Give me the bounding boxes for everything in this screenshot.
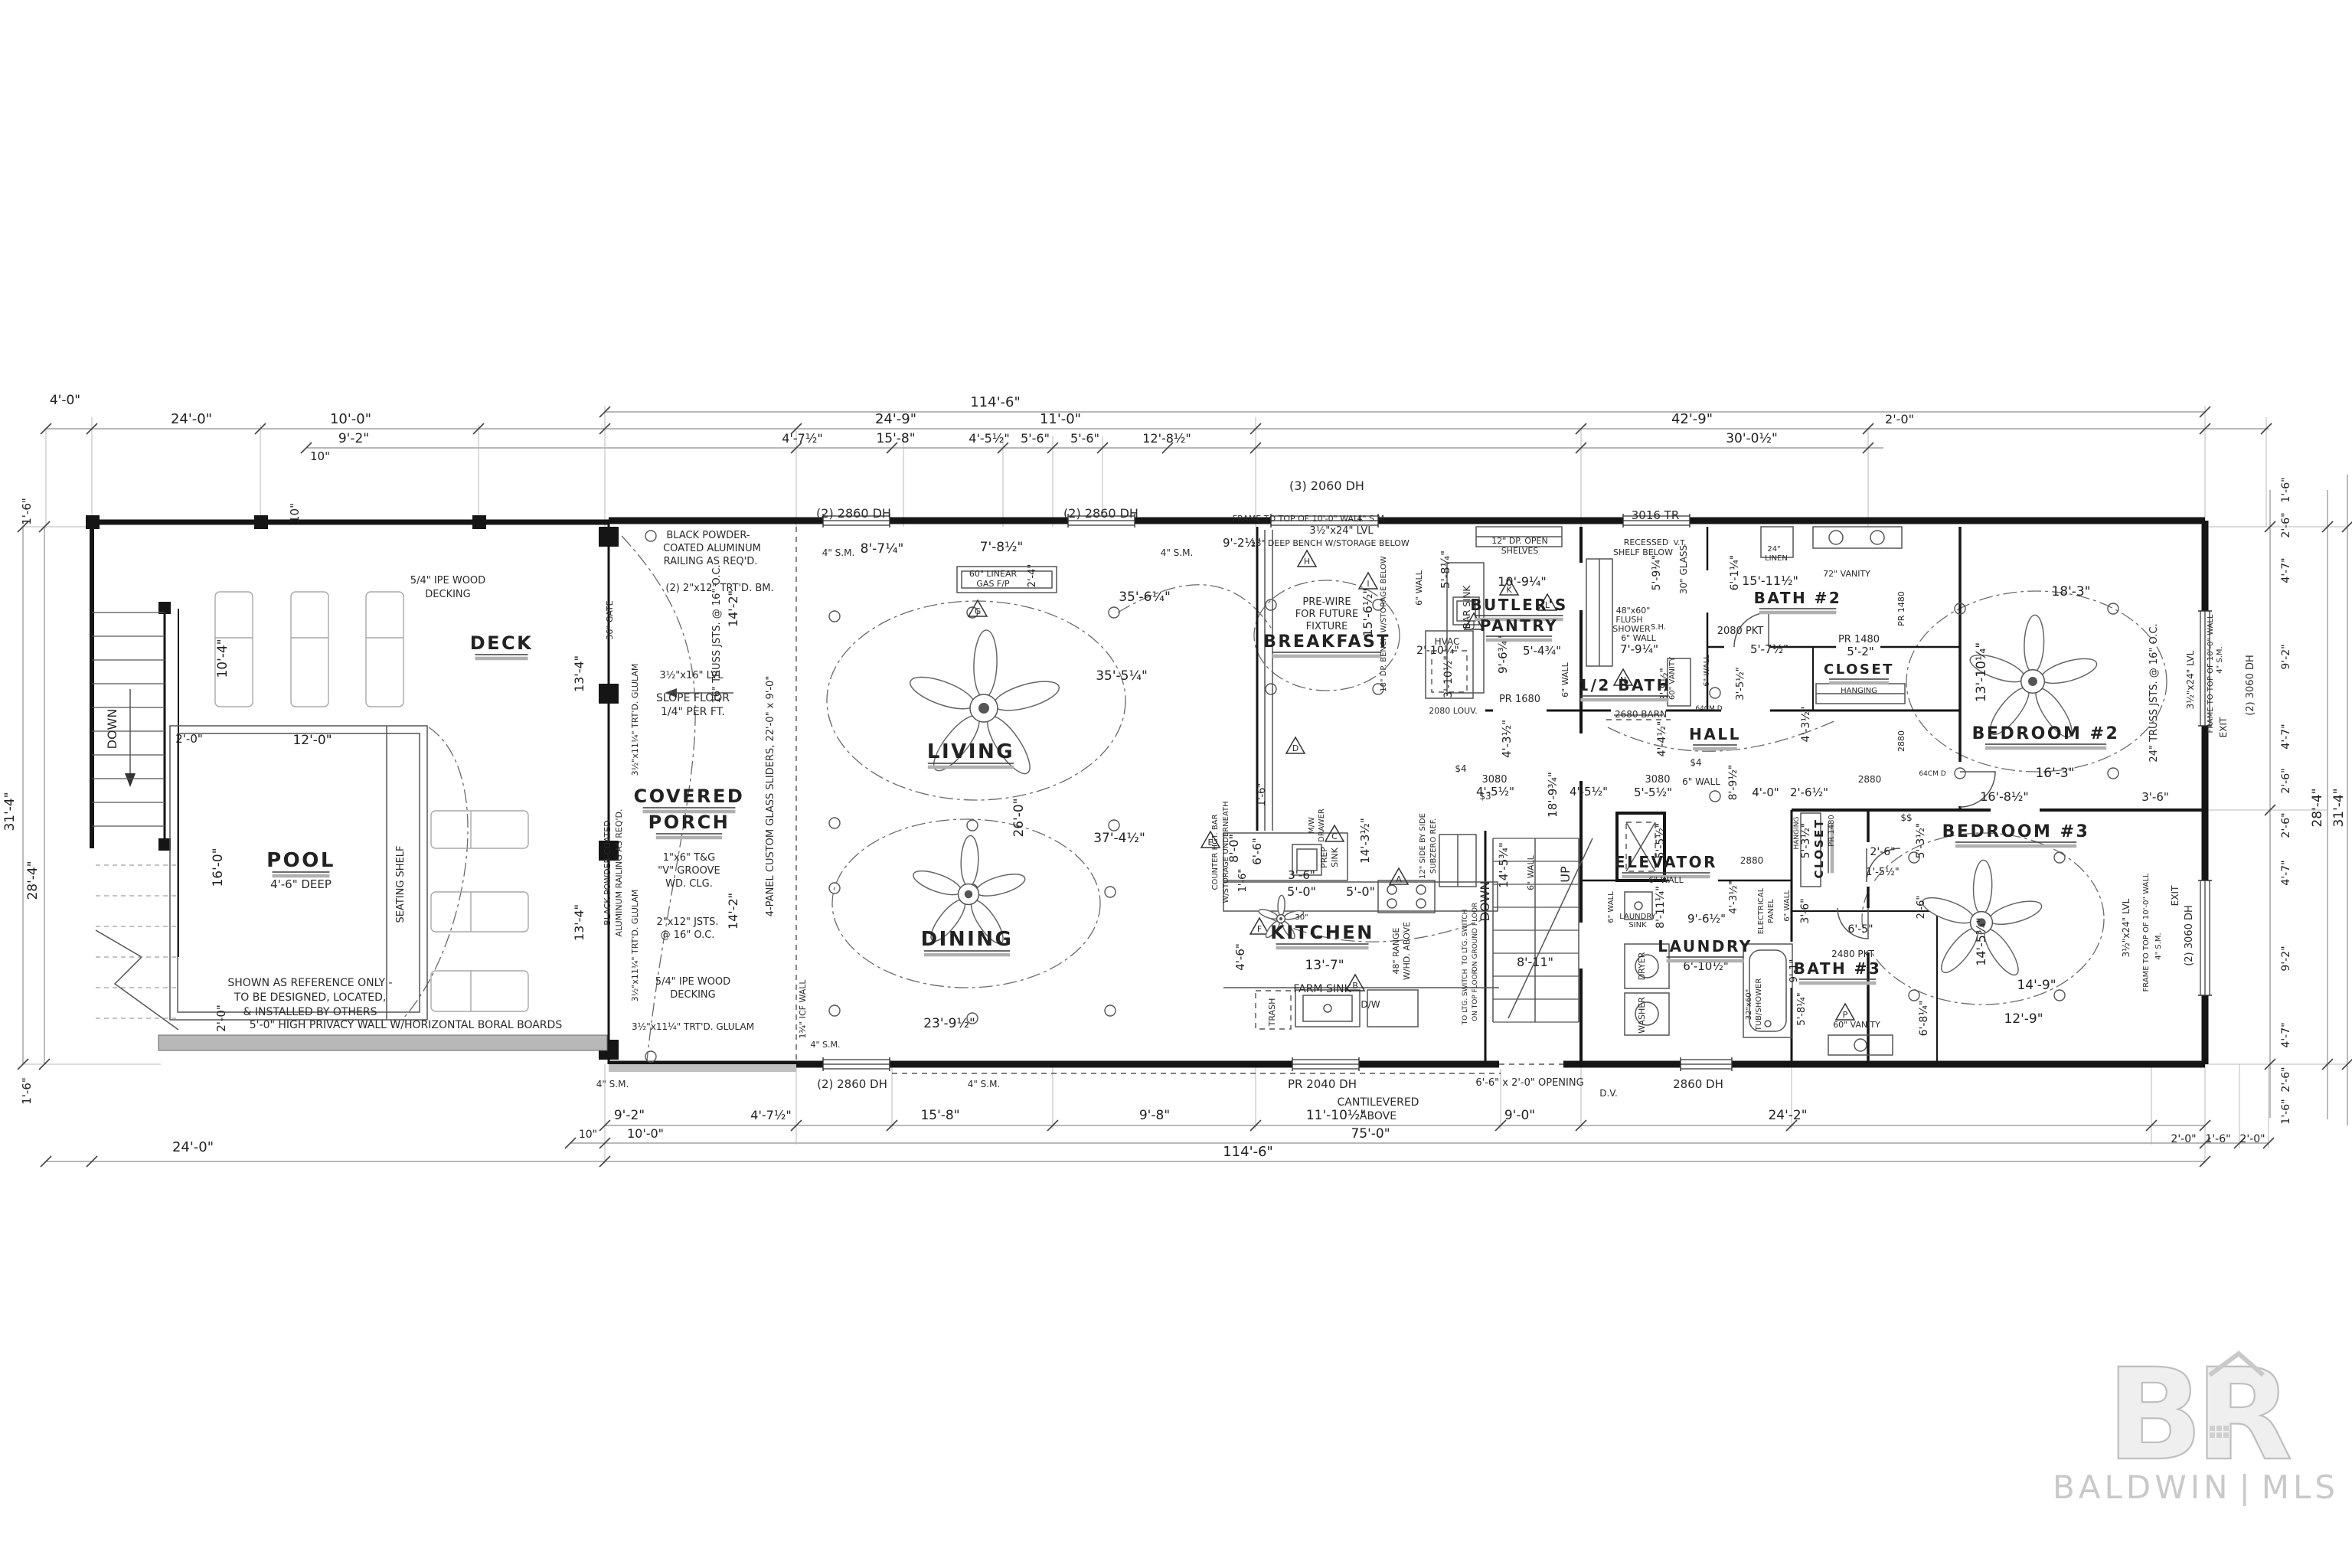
svg-text:9'-2": 9'-2" bbox=[2280, 644, 2292, 669]
svg-text:14'-5¾": 14'-5¾" bbox=[1974, 917, 1988, 966]
svg-text:2'-6": 2'-6" bbox=[2280, 768, 2292, 793]
svg-text:CANTILEVERED: CANTILEVERED bbox=[1338, 1096, 1419, 1109]
annotation-label: DOWN bbox=[1478, 881, 1492, 922]
svg-text:$$: $$ bbox=[1900, 812, 1912, 823]
annotation-label: 3080 bbox=[1481, 774, 1507, 786]
dimension-label: 35'-5¼" bbox=[1096, 668, 1148, 684]
annotation-label: SEATING SHELF bbox=[395, 845, 407, 923]
annotation-label: 4" S.M. bbox=[810, 1040, 840, 1050]
svg-text:6'-1¼": 6'-1¼" bbox=[1729, 555, 1741, 591]
svg-text:BEDROOM #2: BEDROOM #2 bbox=[1972, 724, 2120, 743]
room-label: DINING bbox=[921, 928, 1014, 955]
svg-text:3'-5½": 3'-5½" bbox=[1735, 667, 1746, 700]
annotation-label: PR 1480 bbox=[1896, 591, 1906, 626]
svg-text:ALUMINUM RAILING AS REQ'D.: ALUMINUM RAILING AS REQ'D. bbox=[614, 809, 624, 937]
room-label: BEDROOM #2 bbox=[1972, 724, 2120, 748]
annotation-label: 16" TRUSS JSTS. @ 16" O.C. bbox=[711, 564, 723, 703]
annotation-label: 18" DEEP BENCH W/STORAGE BELOW bbox=[1250, 538, 1410, 548]
annotation-label: W/STORAGE UNDERNEATH bbox=[1222, 801, 1230, 903]
annotation-label: W/HD. ABOVE bbox=[1402, 922, 1412, 980]
svg-text:15'-11½": 15'-11½" bbox=[1742, 573, 1798, 588]
svg-text:(2) 3060 DH: (2) 3060 DH bbox=[2245, 655, 2256, 716]
svg-text:2'-6": 2'-6" bbox=[2280, 1067, 2292, 1092]
annotation-label: 72" VANITY bbox=[1823, 569, 1870, 579]
dimension-label: 4'-3½" bbox=[1800, 707, 1812, 743]
annotation-label: COATED ALUMINUM bbox=[663, 543, 761, 554]
svg-text:5'-7½": 5'-7½" bbox=[1750, 642, 1788, 656]
dimension-label: 5'-0" bbox=[1287, 884, 1316, 899]
annotation-label: 4" S.M. bbox=[2154, 933, 2163, 959]
svg-text:10'-0": 10'-0" bbox=[330, 411, 371, 427]
svg-text:1'-6": 1'-6" bbox=[20, 1077, 34, 1105]
svg-text:SHOWN AS REFERENCE ONLY -: SHOWN AS REFERENCE ONLY - bbox=[227, 977, 392, 989]
annotation-label: (2) 2860 DH bbox=[816, 506, 891, 521]
annotation-label: PRE-WIRE bbox=[1302, 596, 1351, 608]
dimension-label: 5'-6" bbox=[1070, 431, 1099, 446]
svg-text:7'-9¼": 7'-9¼" bbox=[1620, 642, 1658, 656]
annotation-label: @ 16" O.C. bbox=[661, 929, 715, 941]
can-light-icon bbox=[1266, 684, 1276, 694]
can-light-icon bbox=[1266, 599, 1276, 610]
svg-text:2'-0": 2'-0" bbox=[175, 732, 203, 746]
dimension-label: 7'-8½" bbox=[980, 540, 1024, 555]
svg-text:PR 1680: PR 1680 bbox=[1499, 694, 1540, 705]
svg-text:UP: UP bbox=[1558, 866, 1573, 883]
can-light-icon bbox=[829, 611, 840, 622]
svg-text:2680 BARN: 2680 BARN bbox=[1615, 709, 1667, 720]
annotation-label: HVAC bbox=[1435, 636, 1460, 647]
dimension-label: 4'-7" bbox=[2280, 724, 2292, 749]
svg-text:5'-8¼": 5'-8¼" bbox=[1439, 550, 1452, 589]
svg-text:5'-2": 5'-2" bbox=[1847, 645, 1874, 658]
svg-text:C: C bbox=[1331, 831, 1338, 841]
svg-text:H: H bbox=[1304, 557, 1310, 567]
dimension-label: 35'-6¼" bbox=[1119, 590, 1171, 605]
dimension-label: 13'-7" bbox=[1305, 958, 1344, 973]
svg-text:6" WALL: 6" WALL bbox=[1621, 633, 1656, 643]
porch-slab-edge bbox=[609, 1064, 796, 1072]
svg-text:6" WALL: 6" WALL bbox=[1607, 891, 1615, 923]
svg-text:1'-6": 1'-6" bbox=[2205, 1133, 2230, 1145]
dimension-label: 5'-2" bbox=[1847, 645, 1874, 658]
annotation-label: TUB/SHOWER bbox=[1755, 978, 1763, 1032]
annotation-label: ABOVE bbox=[1360, 1110, 1396, 1122]
dimension-label: 5'-6" bbox=[1021, 431, 1050, 446]
annotation-label: TO BE DESIGNED, LOCATED, bbox=[234, 991, 387, 1004]
svg-text:ON TOP FLOOR: ON TOP FLOOR bbox=[1472, 969, 1479, 1021]
svg-text:(2) 2860 DH: (2) 2860 DH bbox=[817, 1077, 887, 1091]
annotation-label: PR 1480 bbox=[1838, 634, 1880, 645]
svg-text:13'-4": 13'-4" bbox=[572, 655, 586, 692]
svg-text:4'-5½": 4'-5½" bbox=[1570, 785, 1608, 799]
annotation-label: 3½"x24" LVL bbox=[2185, 650, 2196, 709]
dimension-label: 4'-7" bbox=[2280, 557, 2292, 583]
annotation-label: (2) 3060 DH bbox=[2245, 655, 2256, 716]
svg-text:BUTLER'S: BUTLER'S bbox=[1470, 596, 1567, 614]
svg-text:4" S.M.: 4" S.M. bbox=[2154, 933, 2163, 959]
svg-text:COUNTER HGT. BAR: COUNTER HGT. BAR bbox=[1211, 814, 1220, 890]
svg-text:24" TRUSS JSTS. @ 16" O.C.: 24" TRUSS JSTS. @ 16" O.C. bbox=[2148, 623, 2160, 762]
svg-text:6'-5": 6'-5" bbox=[1847, 923, 1873, 936]
can-light-icon bbox=[1105, 887, 1116, 897]
dimension-label: 28'-4" bbox=[25, 861, 41, 900]
annotation-label: DRYER bbox=[1637, 952, 1647, 980]
svg-text:15'-8": 15'-8" bbox=[876, 431, 915, 446]
svg-text:6" WALL: 6" WALL bbox=[1526, 854, 1536, 890]
svg-text:ELEVATOR: ELEVATOR bbox=[1615, 853, 1717, 871]
dimension-label: 3'-10½" bbox=[1442, 655, 1455, 698]
svg-text:WASHER: WASHER bbox=[1637, 997, 1647, 1034]
svg-text:WD. CLG.: WD. CLG. bbox=[665, 878, 713, 890]
dimension-label: 5'-5½" bbox=[1634, 786, 1672, 799]
svg-text:2880: 2880 bbox=[1896, 730, 1906, 752]
dimension-label: 13'-10¼" bbox=[1974, 642, 1989, 702]
svg-text:24'-2": 24'-2" bbox=[1768, 1108, 1807, 1123]
svg-text:31'-4": 31'-4" bbox=[2331, 788, 2347, 827]
annotation-label: 5/4" IPE WOOD bbox=[655, 976, 730, 988]
svg-text:5'-0" HIGH PRIVACY WALL W/HORI: 5'-0" HIGH PRIVACY WALL W/HORIZONTAL BOR… bbox=[250, 1019, 563, 1031]
svg-text:SHELF BELOW: SHELF BELOW bbox=[1613, 547, 1673, 557]
svg-text:5'-6": 5'-6" bbox=[1070, 431, 1099, 446]
annotation-label: $3 bbox=[1479, 791, 1491, 802]
dimension-label: 14'-3½" bbox=[1358, 818, 1372, 864]
prep-sink bbox=[1297, 849, 1317, 871]
dimension-label: 8'-7¼" bbox=[861, 541, 904, 557]
dimension-label: 10'-0" bbox=[330, 411, 371, 427]
svg-text:(3) 2060 DH: (3) 2060 DH bbox=[1289, 479, 1364, 493]
dimension-label: 5'-9¼" bbox=[1651, 555, 1663, 591]
svg-text:(2) 2860 DH: (2) 2860 DH bbox=[816, 506, 891, 521]
dimension-label: 13'-4" bbox=[572, 655, 586, 692]
svg-text:HANGING: HANGING bbox=[1793, 816, 1801, 849]
room-label: KITCHEN bbox=[1270, 922, 1374, 948]
svg-text:5'-5½": 5'-5½" bbox=[1634, 786, 1672, 799]
svg-text:B: B bbox=[1352, 981, 1358, 991]
annotation-label: 1"x6" T&G bbox=[663, 852, 715, 864]
room-label: POOL bbox=[266, 849, 335, 876]
dimension-label: 4'-7½" bbox=[750, 1108, 791, 1122]
svg-text:4" S.M.: 4" S.M. bbox=[822, 547, 855, 558]
dimension-label: 5'-7½" bbox=[1750, 642, 1788, 656]
svg-text:"V" GROOVE: "V" GROOVE bbox=[658, 865, 720, 877]
svg-text:9'-8": 9'-8" bbox=[1139, 1108, 1170, 1123]
annotation-label: 4" S.M. bbox=[968, 1079, 1001, 1089]
annotation-label: 1/4" PER FT. bbox=[661, 706, 725, 718]
can-light-icon bbox=[2108, 768, 2118, 779]
annotation-label: SUBZERO REF. bbox=[1429, 818, 1438, 874]
annotation-label: 60" VANITY bbox=[1833, 1020, 1880, 1030]
svg-text:1'-6": 1'-6" bbox=[2280, 1099, 2292, 1124]
svg-text:1'-6": 1'-6" bbox=[2280, 477, 2292, 502]
dimension-label: 1'-6" bbox=[1256, 783, 1268, 807]
dimension-label: 24'-9" bbox=[875, 411, 916, 427]
svg-text:14'-2": 14'-2" bbox=[726, 893, 740, 929]
annotation-label: 6" WALL bbox=[1607, 891, 1615, 923]
svg-text:10": 10" bbox=[579, 1129, 597, 1141]
room-label: COVERED bbox=[634, 786, 745, 812]
svg-text:A: A bbox=[1396, 874, 1402, 884]
svg-text:TUB/SHOWER: TUB/SHOWER bbox=[1755, 978, 1763, 1032]
annotation-label: BAR SINK bbox=[1462, 585, 1472, 629]
svg-text:M/W: M/W bbox=[1308, 817, 1316, 834]
annotation-label: $$ bbox=[1900, 812, 1912, 823]
range bbox=[1378, 880, 1435, 913]
svg-text:4'-3½": 4'-3½" bbox=[1728, 880, 1739, 913]
annotation-label: 18" DP. BENCH W/STORAGE BELOW bbox=[1380, 556, 1388, 692]
room-label: ELEVATOR bbox=[1615, 853, 1717, 877]
svg-text:P: P bbox=[1843, 1010, 1848, 1020]
dimension-label: 15'-8" bbox=[876, 431, 915, 446]
dimension-label: 8'-9½" bbox=[1727, 765, 1739, 801]
svg-text:2'-0": 2'-0" bbox=[214, 1004, 228, 1032]
annotation-label: LINEN bbox=[1765, 554, 1788, 563]
annotation-label: 64CM D bbox=[1919, 770, 1945, 778]
svg-text:12" SIDE BY SIDE: 12" SIDE BY SIDE bbox=[1419, 813, 1427, 879]
svg-text:60" VANITY: 60" VANITY bbox=[1668, 656, 1677, 700]
annotation-label: 2"x12" JSTS. bbox=[656, 916, 718, 928]
room-label: LAUNDRY bbox=[1658, 937, 1752, 961]
svg-text:9'-2": 9'-2" bbox=[338, 431, 369, 446]
annotation-label: ON GROUND FLOOR bbox=[1472, 903, 1479, 972]
annotation-label: ELECTRICAL bbox=[1757, 887, 1766, 934]
annotation-label: GAS F/P bbox=[976, 579, 1010, 589]
svg-text:3'-6": 3'-6" bbox=[1288, 868, 1315, 882]
svg-text:3016 TR: 3016 TR bbox=[1632, 508, 1680, 522]
annotation-label: 2880 bbox=[1740, 855, 1764, 866]
svg-text:5'-9¼": 5'-9¼" bbox=[1651, 555, 1663, 591]
dimension-label: 24'-2" bbox=[1768, 1108, 1807, 1123]
dimension-label: 3'-6" bbox=[2141, 790, 2169, 804]
svg-text:2'-6": 2'-6" bbox=[1916, 896, 1927, 920]
annotation-label: UP bbox=[1558, 866, 1573, 883]
svg-text:4" S.M.: 4" S.M. bbox=[596, 1079, 629, 1089]
annotation-label: RAILING AS REQ'D. bbox=[664, 556, 758, 567]
svg-text:BATH #3: BATH #3 bbox=[1794, 959, 1882, 978]
svg-text:5'-4¾": 5'-4¾" bbox=[1523, 644, 1561, 658]
room-label: BATH #2 bbox=[1754, 589, 1842, 612]
svg-text:SINK: SINK bbox=[1628, 921, 1647, 929]
svg-text:4'-6" DEEP: 4'-6" DEEP bbox=[270, 877, 332, 891]
svg-text:31'-4": 31'-4" bbox=[2, 792, 18, 831]
svg-text:BLACK POWDER-COATED: BLACK POWDER-COATED bbox=[603, 820, 612, 925]
annotation-label: PREP bbox=[1319, 847, 1329, 868]
svg-text:2"x12" JSTS.: 2"x12" JSTS. bbox=[656, 916, 718, 928]
svg-text:16'-8½": 16'-8½" bbox=[1980, 789, 2029, 804]
dimension-label: 15'-11½" bbox=[1742, 573, 1798, 588]
dimension-label: 14'-9" bbox=[2017, 978, 2056, 993]
dimension-label: 2'-6" bbox=[1916, 896, 1927, 920]
svg-text:FIXTURE: FIXTURE bbox=[1306, 621, 1348, 632]
dimension-label: 5'-4¾" bbox=[1523, 644, 1561, 658]
svg-text:GAS F/P: GAS F/P bbox=[976, 579, 1010, 589]
logo-suffix-text: MLS bbox=[2262, 1468, 2339, 1506]
dimension-label: 23'-9½" bbox=[923, 1016, 975, 1031]
annotation-label: 64CM D bbox=[1695, 705, 1722, 713]
annotation-label: 3½"x11¼" TRT'D. GLULAM bbox=[630, 664, 640, 776]
dimension-label: 24'-0" bbox=[172, 1139, 214, 1155]
annotation-label: $4 bbox=[1690, 757, 1701, 768]
svg-text:@ 16" O.C.: @ 16" O.C. bbox=[661, 929, 715, 941]
annotation-label: FRAME TO TOP OF 10'-0" WALL bbox=[2142, 873, 2151, 991]
svg-text:DRYER: DRYER bbox=[1637, 952, 1647, 980]
svg-text:PREP: PREP bbox=[1319, 847, 1329, 868]
dimension-label: 3'-6" bbox=[1799, 898, 1811, 923]
can-light-icon bbox=[1710, 791, 1720, 802]
dimension-label: 9'-2" bbox=[338, 431, 369, 446]
svg-text:12'-8½": 12'-8½" bbox=[1142, 431, 1191, 446]
svg-text:1¾" ICF WALL: 1¾" ICF WALL bbox=[798, 979, 808, 1039]
svg-text:BATH #2: BATH #2 bbox=[1754, 589, 1842, 607]
annotation-label: EXIT bbox=[2170, 885, 2180, 906]
dimension-label: 9'-2" bbox=[614, 1108, 645, 1123]
svg-text:1"x6" T&G: 1"x6" T&G bbox=[663, 852, 715, 864]
dimension-label: 4'-7" bbox=[2280, 860, 2292, 885]
svg-text:8'-11¼": 8'-11¼" bbox=[1655, 886, 1667, 929]
dimension-label: 2'-0" bbox=[175, 732, 203, 746]
svg-text:TO LTG. SWITCH: TO LTG. SWITCH bbox=[1462, 969, 1469, 1026]
baldwin-mls-logo: BR BALDWIN|MLS bbox=[2053, 1341, 2339, 1506]
svg-text:SHELVES: SHELVES bbox=[1501, 546, 1539, 556]
svg-text:10": 10" bbox=[310, 449, 330, 463]
dimension-label: 8'-11¼" bbox=[1655, 886, 1667, 929]
annotation-label: 6" WALL bbox=[1414, 570, 1424, 605]
dimension-label: 12'-0" bbox=[292, 733, 332, 748]
svg-text:BAR SINK: BAR SINK bbox=[1462, 585, 1472, 629]
dimension-label: 1'-6" bbox=[20, 1077, 34, 1105]
svg-text:64CM D: 64CM D bbox=[1695, 705, 1722, 713]
svg-text:4'-5½": 4'-5½" bbox=[969, 431, 1009, 446]
svg-text:4'-7": 4'-7" bbox=[2280, 1022, 2292, 1047]
svg-text:D: D bbox=[1292, 743, 1298, 753]
annotation-label: 3½"x11¼" TRT'D. GLULAM bbox=[632, 1021, 754, 1032]
svg-text:DECK: DECK bbox=[470, 632, 534, 654]
can-light-icon bbox=[2054, 852, 2065, 863]
annotation-label: BLACK POWDER- bbox=[666, 530, 750, 541]
annotation-label: LAUNDRY bbox=[1619, 913, 1656, 921]
annotation-label: $4 bbox=[1455, 763, 1466, 774]
annotation-label: 4" S.M. bbox=[596, 1079, 629, 1089]
svg-text:3080: 3080 bbox=[1645, 774, 1670, 786]
dimension-label: 1'-6" bbox=[2280, 477, 2292, 502]
svg-text:11'-10½": 11'-10½" bbox=[1306, 1108, 1366, 1123]
svg-text:HALL: HALL bbox=[1689, 725, 1741, 743]
can-light-icon bbox=[645, 531, 656, 541]
svg-text:F: F bbox=[1257, 924, 1262, 934]
dimension-label: 14'-5¾" bbox=[1497, 842, 1511, 888]
dimension-label: 15'-8" bbox=[920, 1108, 959, 1123]
svg-text:& INSTALLED BY OTHERS: & INSTALLED BY OTHERS bbox=[243, 1006, 377, 1018]
svg-text:3½"x24" LVL: 3½"x24" LVL bbox=[2121, 898, 2131, 957]
svg-text:POOL: POOL bbox=[266, 849, 335, 872]
svg-text:4'-7": 4'-7" bbox=[2280, 860, 2292, 885]
svg-text:TRASH: TRASH bbox=[1267, 998, 1277, 1027]
svg-text:2480 PKT: 2480 PKT bbox=[1831, 949, 1875, 959]
svg-text:14'-2": 14'-2" bbox=[726, 590, 740, 627]
svg-text:13'-10¼": 13'-10¼" bbox=[1974, 642, 1989, 702]
dimension-label: 5'-0" bbox=[1346, 884, 1375, 899]
svg-text:13'-7": 13'-7" bbox=[1305, 958, 1344, 973]
svg-text:60" LINEAR: 60" LINEAR bbox=[969, 569, 1018, 579]
dimension-label: 8'-11" bbox=[1517, 955, 1553, 969]
dimension-label: 16'-0" bbox=[211, 848, 226, 887]
svg-text:5'-0": 5'-0" bbox=[1346, 884, 1375, 899]
room-label: BATH #3 bbox=[1794, 959, 1882, 983]
dimension-label: 6'-6" bbox=[1250, 838, 1264, 865]
keynote-g-icon: G bbox=[969, 600, 987, 616]
annotation-label: 24" bbox=[1767, 545, 1780, 554]
svg-text:18" DEEP BENCH W/STORAGE BELOW: 18" DEEP BENCH W/STORAGE BELOW bbox=[1250, 538, 1410, 548]
svg-text:16'-0": 16'-0" bbox=[211, 848, 226, 887]
can-light-icon bbox=[1710, 688, 1720, 698]
svg-text:DECKING: DECKING bbox=[670, 989, 715, 1001]
svg-text:DOWN: DOWN bbox=[105, 709, 119, 750]
dimension-label: 11'-0" bbox=[1040, 411, 1081, 427]
annotation-label: TO LTG. SWITCH bbox=[1462, 910, 1469, 966]
annotation-label: 2860 DH bbox=[1673, 1077, 1723, 1091]
logo-monogram: BR bbox=[2107, 1341, 2291, 1488]
dimension-label: 4'-5½" bbox=[1570, 785, 1608, 799]
dimension-label: 2'-6½" bbox=[1790, 786, 1828, 799]
svg-text:9'-2": 9'-2" bbox=[614, 1108, 645, 1123]
svg-text:42'-9": 42'-9" bbox=[1671, 411, 1713, 427]
annotation-label: RECESSED bbox=[1624, 537, 1669, 547]
annotation-label: SHOWN AS REFERENCE ONLY - bbox=[227, 977, 392, 989]
dimension-label: 42'-9" bbox=[1671, 411, 1713, 427]
svg-text:ELECTRICAL: ELECTRICAL bbox=[1757, 887, 1766, 934]
annotation-label: 4" S.M. bbox=[2216, 646, 2224, 673]
pool bbox=[170, 726, 427, 1020]
svg-text:114'-6": 114'-6" bbox=[970, 394, 1021, 410]
annotation-label: FIXTURE bbox=[1306, 621, 1348, 632]
svg-text:3½"x11¼" TRT'D. GLULAM: 3½"x11¼" TRT'D. GLULAM bbox=[630, 890, 640, 1002]
annotation-label: 3080 bbox=[1645, 774, 1670, 786]
svg-text:2'-6": 2'-6" bbox=[1870, 846, 1895, 858]
svg-text:TO LTG. SWITCH: TO LTG. SWITCH bbox=[1462, 910, 1469, 966]
annotation-label: ALUMINUM RAILING AS REQ'D. bbox=[614, 809, 624, 937]
deck-stairs bbox=[125, 689, 136, 787]
svg-text:12'-9": 12'-9" bbox=[2004, 1011, 2043, 1027]
annotation-label: 30" GLASS bbox=[1678, 545, 1689, 594]
svg-text:3080: 3080 bbox=[1481, 774, 1507, 786]
can-light-icon bbox=[1909, 990, 1919, 1001]
svg-text:6'-8¼": 6'-8¼" bbox=[1918, 1001, 1930, 1037]
dimension-label: 9'-2" bbox=[2280, 644, 2292, 669]
svg-text:5/4" IPE WOOD: 5/4" IPE WOOD bbox=[655, 976, 730, 988]
room-label: PORCH bbox=[648, 812, 730, 838]
dimension-label: 28'-4" bbox=[2310, 788, 2325, 827]
svg-text:3½"x24" LVL: 3½"x24" LVL bbox=[1309, 525, 1374, 537]
svg-text:10'-9¼": 10'-9¼" bbox=[1498, 574, 1547, 589]
room-label: DECK bbox=[470, 632, 534, 658]
dimension-label: 26'-0" bbox=[1011, 798, 1027, 837]
svg-text:6" WALL: 6" WALL bbox=[1783, 890, 1792, 922]
svg-text:ON GROUND FLOOR: ON GROUND FLOOR bbox=[1472, 903, 1479, 972]
svg-text:PORCH: PORCH bbox=[648, 812, 730, 833]
svg-text:CLOSET: CLOSET bbox=[1812, 818, 1826, 878]
annotation-label: 5/4" IPE WOOD bbox=[410, 575, 485, 586]
annotation-label: 1¾" ICF WALL bbox=[798, 979, 808, 1039]
annotation-label: 6" WALL bbox=[1682, 776, 1720, 787]
annotation-label: 48" RANGE bbox=[1391, 927, 1401, 974]
dimension-label: 12'-9" bbox=[2004, 1011, 2043, 1027]
dimension-label: 1'-6" bbox=[1237, 869, 1249, 893]
svg-text:1'-5½": 1'-5½" bbox=[1866, 867, 1899, 878]
svg-text:114'-6": 114'-6" bbox=[1223, 1144, 1273, 1160]
svg-text:RECESSED: RECESSED bbox=[1624, 537, 1669, 547]
dimension-label: 3'-6" bbox=[1288, 868, 1315, 882]
dimension-label: 1'-5½" bbox=[1866, 867, 1899, 878]
svg-text:16'-3": 16'-3" bbox=[2035, 766, 2074, 781]
